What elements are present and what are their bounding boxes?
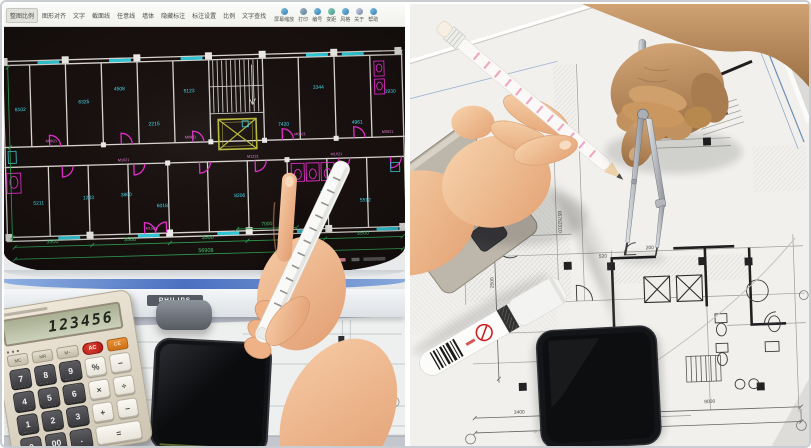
calculator-key-11: 2: [41, 409, 65, 431]
cad-menu-item-0: 整图比例: [6, 8, 38, 23]
calculator-key-5: 4: [12, 390, 36, 412]
smartphone-on-desk: [149, 337, 273, 446]
calculator-key-15: 0: [20, 435, 44, 446]
cad-toolbar-item-0: 屏幕缩放: [274, 8, 294, 23]
calculator-key-8: ×: [87, 378, 111, 400]
calculator-key-2: 9: [59, 359, 83, 381]
calculator-key-6: 5: [37, 386, 61, 408]
calculator-key-16: 00: [44, 432, 68, 446]
cad-toolbar-item-3: 变距: [326, 8, 336, 23]
calculator-key-4: −: [108, 352, 132, 374]
cad-toolbar-item-4: 风格: [340, 8, 350, 23]
blueprint-work-photo: 34009000307005202002000250005762310: [410, 4, 809, 446]
cad-floorplan-drawing: 35003500350035003500 56908 7000 81025211…: [4, 26, 405, 272]
calculator-key-1: 8: [34, 363, 58, 385]
cad-menu-item-1: 图形对齐: [39, 9, 69, 22]
cad-toolbar-item-6: 帮助: [368, 8, 378, 23]
cad-toolbar-item-5: 关于: [354, 8, 364, 23]
calculator: 123456 MCMRM−ACCE 789%−456×÷123+−000.=: [4, 289, 154, 446]
cad-screen: 35003500350035003500 56908 7000 81025211…: [4, 26, 405, 272]
blueprint-scene: 34009000307005202002000250005762310: [410, 4, 809, 446]
cad-menu-item-3: 截面线: [89, 9, 113, 22]
cad-toolbar: 屏幕缩放打印编号变距风格关于帮助: [274, 8, 378, 23]
calculator-key-10: 1: [16, 413, 40, 435]
cad-monitor-photo: 整图比例图形对齐文字截面线任意线墙体隐藏标注标注设置比例文字查找 屏幕缩放打印编…: [4, 4, 405, 446]
calculator-key-3: %: [83, 355, 107, 377]
screen-vignette: [4, 26, 405, 272]
cad-menu-item-6: 隐藏标注: [158, 9, 188, 22]
cad-menu-bar: 整图比例图形对齐文字截面线任意线墙体隐藏标注标注设置比例文字查找 屏幕缩放打印编…: [4, 4, 405, 27]
calculator-key-0: 7: [9, 367, 33, 389]
calculator-key-7: 6: [62, 382, 86, 404]
calculator-key-12: 3: [66, 405, 90, 427]
cad-toolbar-item-1: 打印: [298, 8, 308, 23]
cad-menu-item-8: 比例: [220, 9, 238, 22]
calculator-key-14: −: [116, 397, 140, 419]
cad-menu-item-9: 文字查找: [239, 9, 269, 22]
cad-menu-items: 整图比例图形对齐文字截面线任意线墙体隐藏标注标注设置比例文字查找: [4, 8, 269, 23]
calculator-key-17: .: [69, 428, 93, 446]
cad-menu-item-7: 标注设置: [189, 9, 219, 22]
cad-menu-item-5: 墙体: [139, 9, 157, 22]
monitor-stand: [156, 300, 212, 330]
cad-menu-item-4: 任意线: [114, 9, 138, 22]
smartphone-on-blueprint: [532, 325, 666, 446]
smartphone-screen: [155, 343, 266, 446]
calculator-display-value: 123456: [47, 307, 115, 335]
cad-menu-item-2: 文字: [70, 9, 88, 22]
cad-toolbar-item-2: 编号: [312, 8, 322, 23]
calculator-key-13: +: [91, 401, 115, 423]
photo-collage: 整图比例图形对齐文字截面线任意线墙体隐藏标注标注设置比例文字查找 屏幕缩放打印编…: [0, 0, 811, 448]
calculator-key-9: ÷: [112, 374, 136, 396]
